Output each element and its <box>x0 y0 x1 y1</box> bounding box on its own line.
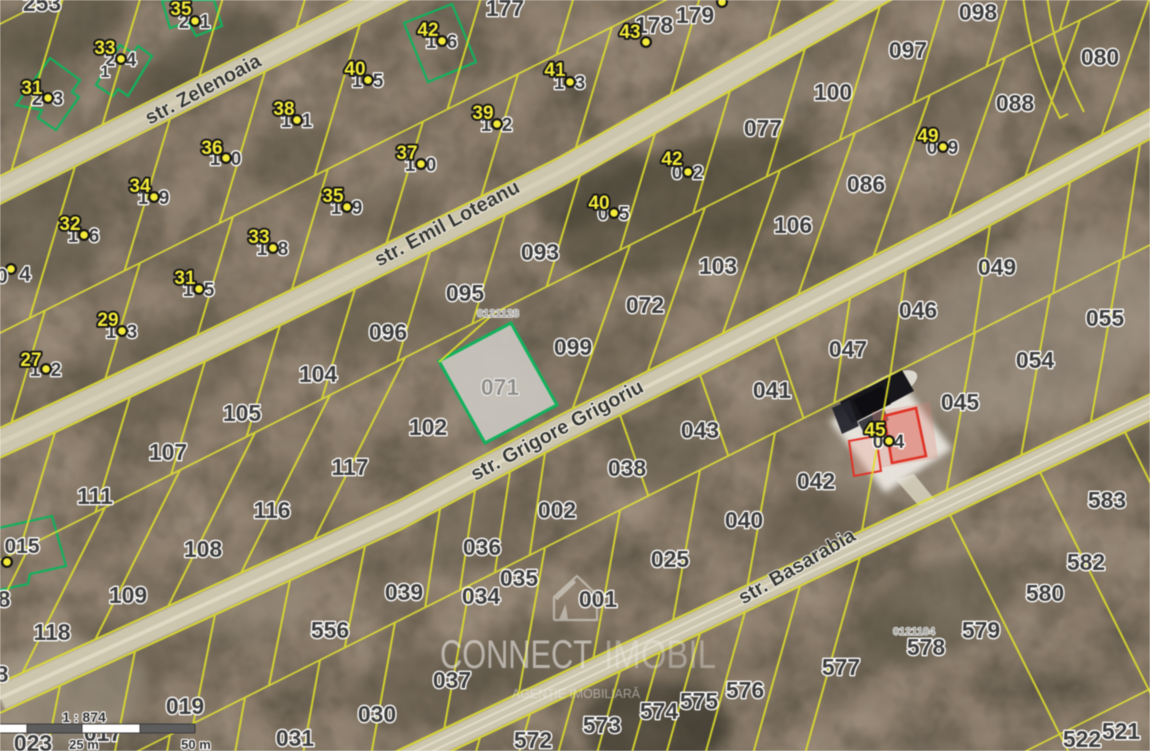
svg-text:116: 116 <box>253 497 290 523</box>
svg-text:AGENȚIE IMOBILIARĂ: AGENȚIE IMOBILIARĂ <box>512 686 640 701</box>
svg-text:34: 34 <box>129 176 151 197</box>
svg-text:103: 103 <box>699 253 737 279</box>
svg-text:IMOBIL: IMOBIL <box>604 633 716 677</box>
svg-text:CONNECT: CONNECT <box>440 633 592 677</box>
svg-text:556: 556 <box>311 617 349 643</box>
svg-text:2: 2 <box>51 360 62 381</box>
svg-text:574: 574 <box>640 698 679 724</box>
svg-text:33: 33 <box>248 227 269 248</box>
svg-text:582: 582 <box>1067 549 1105 575</box>
svg-text:4: 4 <box>19 263 31 286</box>
svg-text:572: 572 <box>514 727 552 751</box>
svg-text:117: 117 <box>331 454 368 480</box>
svg-text:45: 45 <box>864 420 886 441</box>
svg-text:576: 576 <box>726 677 764 703</box>
svg-text:104: 104 <box>299 361 338 387</box>
svg-text:097: 097 <box>889 37 927 63</box>
svg-text:049: 049 <box>978 254 1016 280</box>
svg-text:42: 42 <box>417 20 438 41</box>
svg-text:100: 100 <box>814 79 852 105</box>
svg-text:31: 31 <box>174 268 196 289</box>
svg-text:0: 0 <box>426 155 437 176</box>
svg-text:5: 5 <box>619 204 630 225</box>
svg-text:096: 096 <box>369 319 407 345</box>
svg-text:102: 102 <box>409 414 447 440</box>
svg-text:088: 088 <box>996 90 1035 116</box>
svg-text:039: 039 <box>385 579 423 605</box>
svg-text:1 : 874: 1 : 874 <box>62 709 106 725</box>
svg-text:577: 577 <box>822 654 860 680</box>
svg-text:077: 077 <box>744 115 782 141</box>
svg-text:6: 6 <box>89 226 100 247</box>
svg-text:054: 054 <box>1016 347 1055 373</box>
svg-text:3: 3 <box>53 89 64 110</box>
svg-text:43: 43 <box>619 22 640 43</box>
svg-text:105: 105 <box>223 400 262 426</box>
svg-text:522: 522 <box>1063 726 1101 751</box>
svg-text:177: 177 <box>486 0 524 21</box>
svg-text:580: 580 <box>1026 580 1064 606</box>
svg-text:0121128: 0121128 <box>477 308 519 320</box>
svg-text:040: 040 <box>725 507 763 533</box>
svg-text:5: 5 <box>204 280 215 301</box>
svg-text:4: 4 <box>126 50 137 71</box>
svg-text:035: 035 <box>500 565 539 591</box>
svg-text:1: 1 <box>100 62 109 81</box>
svg-text:055: 055 <box>1086 305 1125 331</box>
svg-text:27: 27 <box>20 350 41 371</box>
svg-text:025: 025 <box>651 546 690 572</box>
svg-text:38: 38 <box>273 99 294 120</box>
svg-text:41: 41 <box>544 60 566 81</box>
svg-text:39: 39 <box>472 103 493 124</box>
svg-text:179: 179 <box>676 2 714 28</box>
svg-text:031: 031 <box>276 725 315 751</box>
svg-text:030: 030 <box>358 701 396 727</box>
svg-text:40: 40 <box>588 193 609 214</box>
svg-text:038: 038 <box>608 455 647 481</box>
svg-text:35: 35 <box>170 0 192 20</box>
svg-text:093: 093 <box>521 239 559 265</box>
svg-text:045: 045 <box>941 389 980 415</box>
svg-text:0121104: 0121104 <box>893 626 936 638</box>
svg-text:31: 31 <box>21 78 43 99</box>
svg-text:2: 2 <box>693 163 704 184</box>
svg-text:9: 9 <box>159 188 170 209</box>
svg-text:106: 106 <box>774 212 812 238</box>
svg-text:086: 086 <box>847 171 885 197</box>
svg-text:50 m: 50 m <box>181 737 211 751</box>
svg-text:095: 095 <box>446 280 485 306</box>
svg-text:042: 042 <box>797 468 835 494</box>
svg-text:0: 0 <box>231 149 242 170</box>
svg-text:107: 107 <box>149 439 187 465</box>
svg-text:072: 072 <box>626 292 664 318</box>
svg-text:37: 37 <box>396 143 417 164</box>
svg-text:046: 046 <box>899 297 937 323</box>
svg-text:002: 002 <box>538 497 576 523</box>
svg-text:0: 0 <box>0 265 8 288</box>
svg-text:583: 583 <box>1088 487 1126 513</box>
svg-text:32: 32 <box>59 214 80 235</box>
svg-text:8: 8 <box>0 586 11 612</box>
svg-text:25 m: 25 m <box>69 737 99 751</box>
svg-text:015: 015 <box>4 535 39 558</box>
svg-text:3: 3 <box>575 73 586 94</box>
svg-text:9: 9 <box>352 198 363 219</box>
svg-text:579: 579 <box>962 617 1000 643</box>
svg-text:108: 108 <box>184 536 223 562</box>
svg-text:8: 8 <box>0 661 9 687</box>
svg-text:036: 036 <box>463 534 501 560</box>
svg-text:019: 019 <box>166 693 204 719</box>
svg-text:099: 099 <box>554 334 592 360</box>
svg-text:001: 001 <box>579 586 618 612</box>
svg-text:35: 35 <box>322 186 344 207</box>
svg-text:5: 5 <box>373 71 384 92</box>
svg-text:3: 3 <box>127 322 138 343</box>
svg-text:575: 575 <box>680 688 719 714</box>
svg-text:111: 111 <box>77 483 113 509</box>
svg-text:42: 42 <box>661 149 682 170</box>
svg-text:047: 047 <box>829 336 867 362</box>
svg-text:9: 9 <box>948 138 959 159</box>
svg-text:098: 098 <box>959 0 998 25</box>
svg-text:118: 118 <box>33 619 70 645</box>
svg-text:1: 1 <box>200 12 211 33</box>
svg-text:1: 1 <box>302 111 313 132</box>
svg-text:49: 49 <box>917 126 938 147</box>
svg-text:521: 521 <box>1102 718 1141 744</box>
svg-text:8: 8 <box>278 239 289 260</box>
svg-text:29: 29 <box>97 310 118 331</box>
svg-text:2: 2 <box>502 115 513 136</box>
svg-text:178: 178 <box>635 12 674 38</box>
svg-text:071: 071 <box>481 374 520 400</box>
svg-text:109: 109 <box>109 582 147 608</box>
svg-text:6: 6 <box>447 32 458 53</box>
svg-text:573: 573 <box>583 712 621 738</box>
svg-text:253: 253 <box>23 0 61 16</box>
svg-text:080: 080 <box>1081 44 1119 70</box>
svg-text:40: 40 <box>344 59 365 80</box>
svg-text:041: 041 <box>753 377 792 403</box>
svg-text:4: 4 <box>894 432 905 453</box>
svg-text:36: 36 <box>201 138 222 159</box>
svg-text:043: 043 <box>681 417 719 443</box>
svg-text:034: 034 <box>462 583 501 609</box>
svg-text:33: 33 <box>94 38 115 59</box>
